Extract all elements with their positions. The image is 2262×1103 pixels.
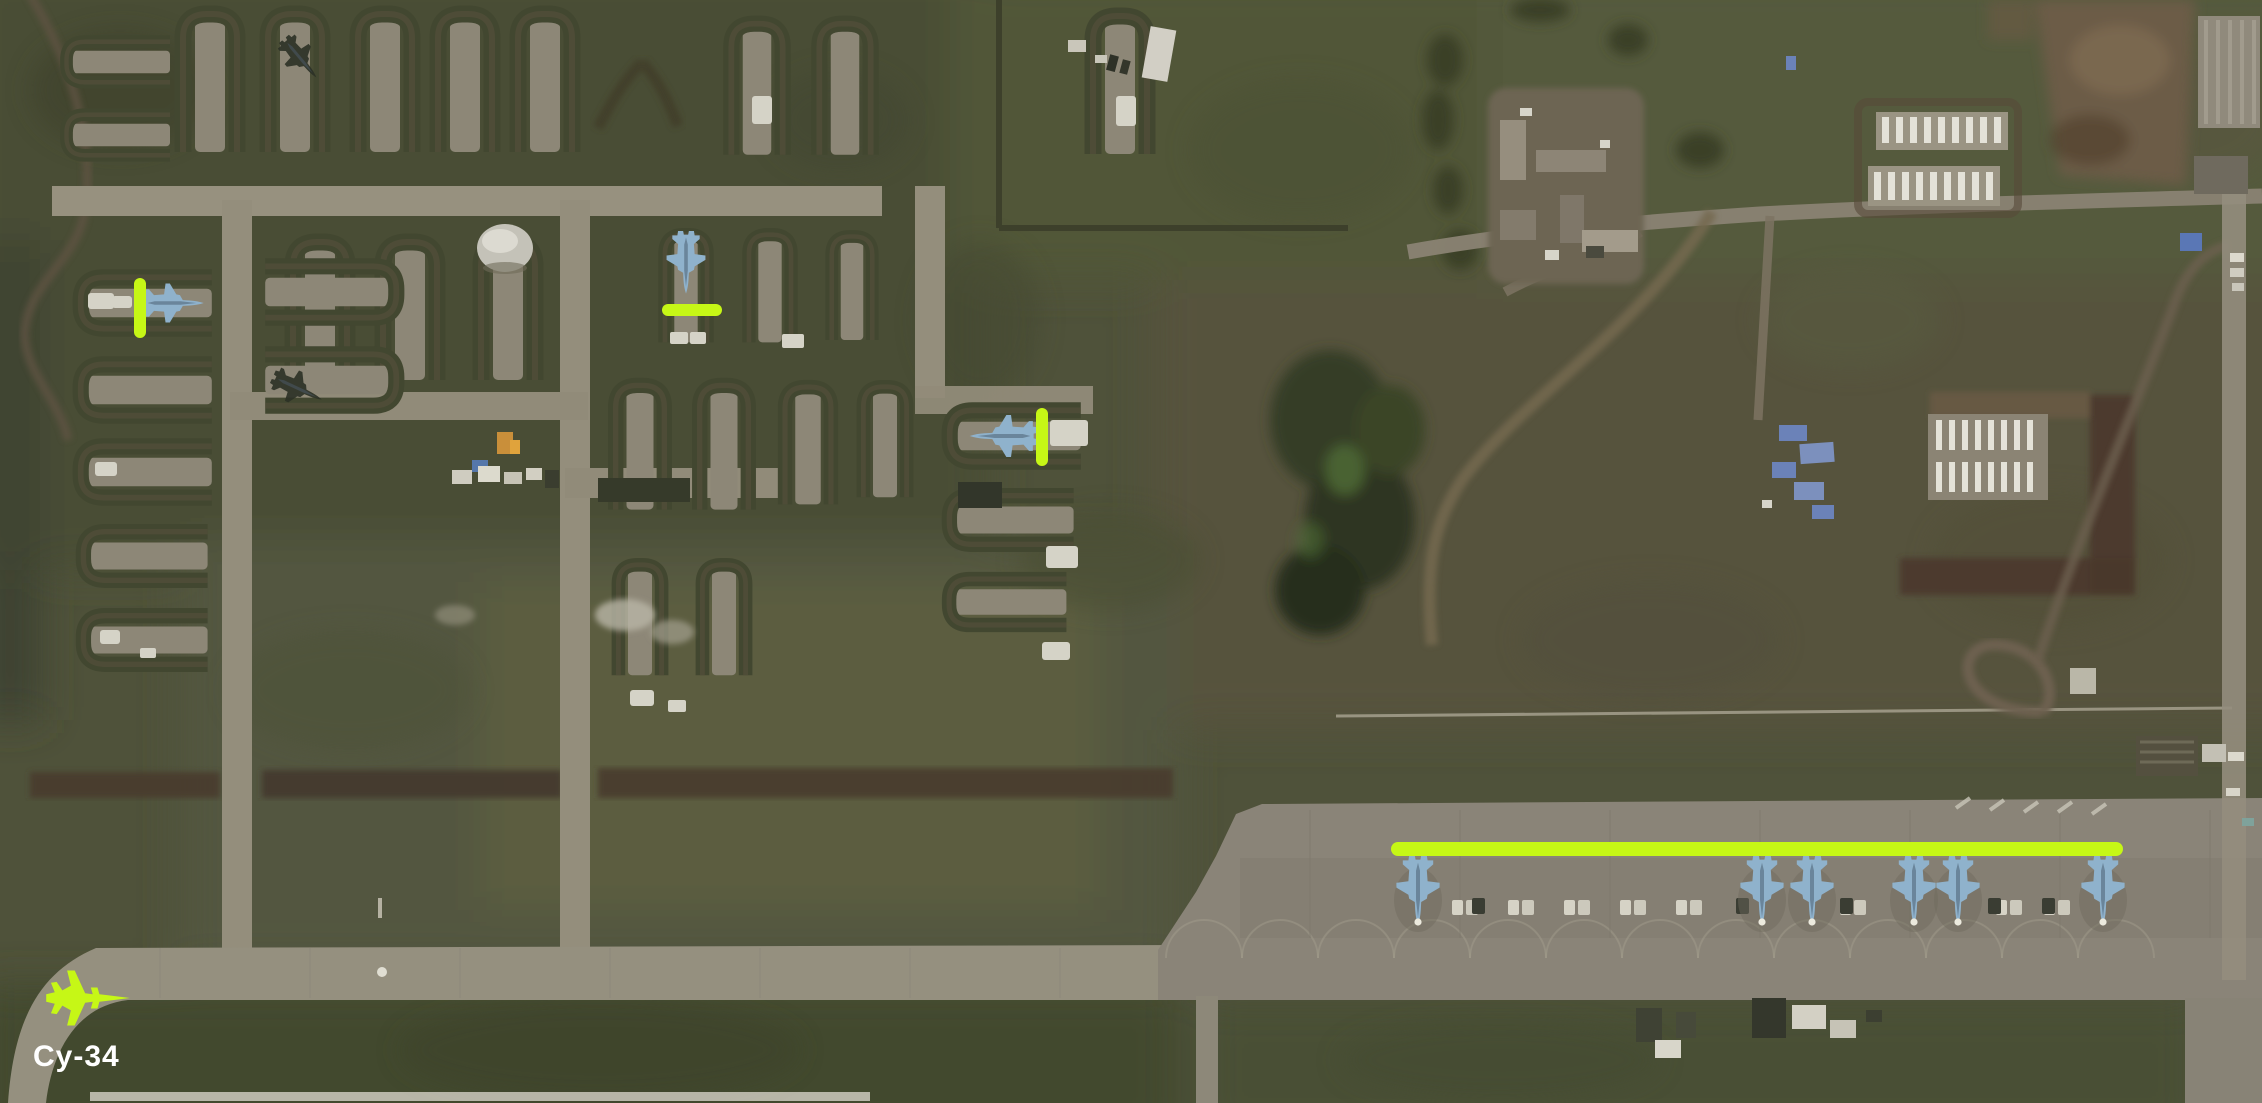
ground-equipment (1522, 900, 1534, 915)
long-shed (598, 478, 690, 502)
arched-shelter (477, 224, 533, 274)
taxiway-north (52, 186, 882, 216)
ground-equipment (1854, 900, 1866, 915)
ground-equipment (1620, 900, 1631, 915)
aircraft-radome (1414, 918, 1421, 925)
bottom-pavement-edge (90, 1092, 870, 1101)
stub-road (1196, 996, 1218, 1103)
ground-equipment (1508, 900, 1519, 915)
ground-equipment (1676, 900, 1687, 915)
tug-vehicle (1988, 898, 2001, 914)
ground-equipment (1578, 900, 1590, 915)
aircraft-radome (1954, 918, 1961, 925)
dark-shed (958, 482, 1002, 508)
concrete-pad (2070, 668, 2096, 694)
aircraft-radome (1808, 918, 1815, 925)
ground-equipment (2010, 900, 2022, 915)
tug-vehicle (1840, 898, 1853, 914)
taxiway-vertical-2 (560, 200, 590, 962)
ground-equipment (1690, 900, 1702, 915)
taxiway-vertical-1 (222, 200, 252, 962)
road-right-edge (2222, 190, 2246, 980)
tent-rows-middle (1928, 414, 2048, 500)
tug-vehicle (2042, 898, 2055, 914)
hedgerows (30, 768, 1173, 798)
ground-equipment (1452, 900, 1463, 915)
ground-equipment (1634, 900, 1646, 915)
satellite-scene: Су-34 (0, 0, 2262, 1103)
aircraft-radome (2099, 918, 2106, 925)
tug-vehicle (1472, 898, 1485, 914)
ground-equipment (1564, 900, 1575, 915)
ground-equipment (2058, 900, 2070, 915)
aircraft-radome (1910, 918, 1917, 925)
su34-label: Су-34 (33, 1040, 120, 1073)
pole (378, 898, 382, 918)
aircraft-radome (1758, 918, 1765, 925)
taxiway-vertical-3 (915, 186, 945, 398)
annotated-satellite-image: Су-34 (0, 0, 2262, 1103)
hq-compound (1488, 88, 1644, 284)
road-object (377, 967, 387, 977)
concrete-corner (2185, 998, 2262, 1103)
